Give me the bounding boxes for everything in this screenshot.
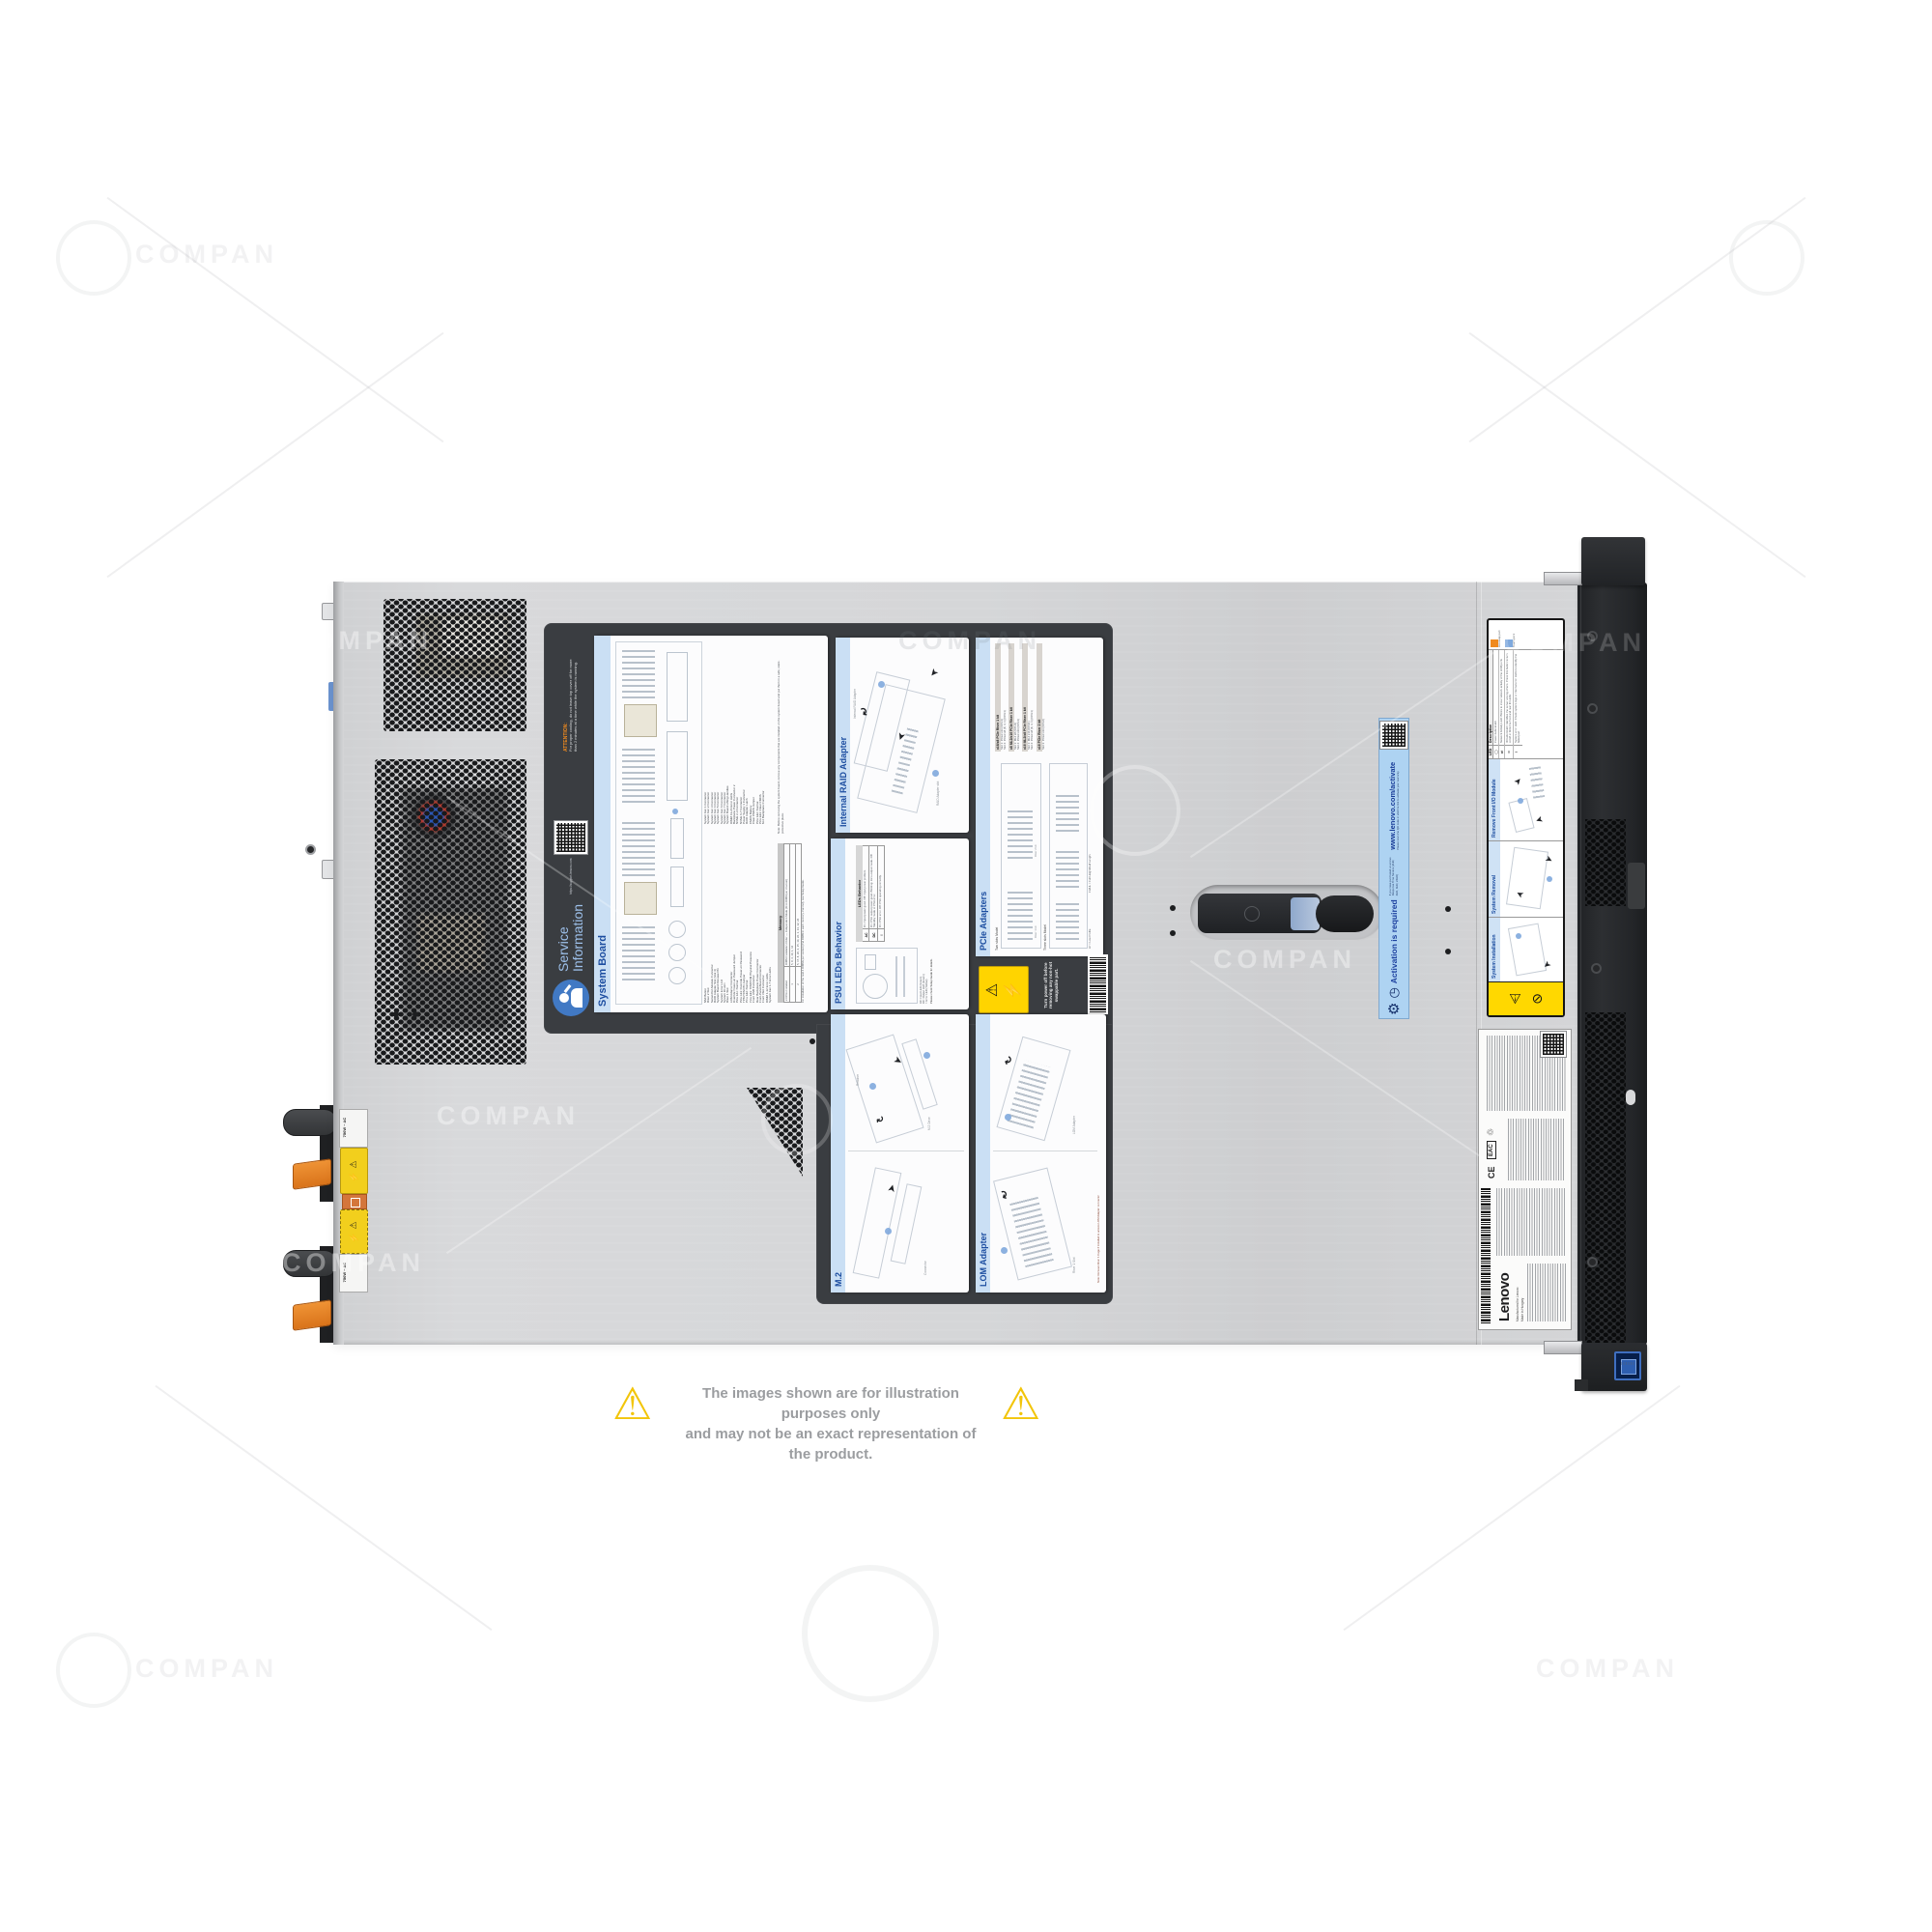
callout-dot	[1547, 876, 1552, 882]
pcie-caption: Three slots Model	[1043, 924, 1047, 951]
lom-line-art	[1009, 1195, 1054, 1267]
attention-body: For proper cooling, do not leave top cov…	[569, 651, 578, 752]
lom-line-art	[993, 1168, 1072, 1281]
callout-dot	[1518, 798, 1523, 804]
pcie-kit: x16 PCIe Riser 2 kit Slot 3: PCIe3 x16 (…	[1037, 643, 1045, 752]
memory-cell: 1	[790, 966, 795, 1002]
m2-caption: Retainer	[856, 1074, 860, 1086]
service-info-panel: Service Information https://support.leno…	[547, 634, 595, 1030]
activation-title: Activation is required	[1389, 899, 1399, 983]
m2-label-title: M.2	[831, 1014, 845, 1293]
plate-warning-sticker: ⚠ ⚡	[979, 966, 1029, 1013]
pcie-line-art: Riser 1 kit Riser 2 kit	[1001, 763, 1041, 949]
high-voltage-icon: ⚡	[1003, 980, 1022, 1000]
disclaimer-text: The images shown are for illustration pu…	[676, 1383, 985, 1464]
gear-icon: ⚙	[1385, 1003, 1403, 1015]
activation-body: Please scan the QR code or visit the lin…	[1397, 753, 1400, 850]
led-row-desc: Power button/LED	[1493, 650, 1498, 745]
microtext-block	[1496, 1188, 1566, 1256]
strip-caution-section: ⚠ ⊘	[1489, 981, 1563, 1015]
rear-screw	[307, 846, 314, 853]
rear-vent-psu-bay	[384, 599, 526, 731]
pcie-kit: x16/x8 PCIe Riser 1 kit Slot 1: PCIe3 x1…	[995, 643, 1007, 752]
hot-swap-label: Hot-swap part	[1498, 622, 1501, 647]
activation-label: ⚙ ◷ Activation is required If you have p…	[1378, 718, 1409, 1019]
pcie-kit-tables: x16/x8 PCIe Riser 1 kit Slot 1: PCIe3 x1…	[995, 643, 1099, 752]
hex-perforation	[375, 759, 526, 1065]
regulatory-barcode	[1481, 1188, 1491, 1323]
board-footer: Memory # CPUs Installed DIMM Installatio…	[778, 645, 824, 1003]
kit-slot: Slot 2: PCIe3 x8 (8, 4, 1) (CPU1)	[1004, 643, 1007, 752]
disclaimer-line-2: and may not be an exact representation o…	[676, 1424, 985, 1464]
arrow-icon: ➤	[1535, 814, 1544, 825]
psu-1-release-tab	[293, 1158, 331, 1190]
regulatory-qr	[1541, 1032, 1566, 1057]
cover-seam	[1476, 582, 1477, 1345]
service-info-title: Information	[571, 904, 585, 972]
pcie-caption: Riser 1 kit	[1034, 926, 1037, 938]
eac-mark: EAC	[1487, 1141, 1496, 1159]
psu-leds-label: PSU LEDs Behavior AC: Input LED (Green) …	[831, 838, 969, 1009]
ce-mark: CE	[1487, 1166, 1496, 1179]
disclaimer-line-1: The images shown are for illustration pu…	[676, 1383, 985, 1424]
internal-raid-label: Internal RAID Adapter ↷ ➤ ➤ RAID Adapter…	[836, 638, 969, 833]
board-diagram	[615, 641, 702, 1005]
connector	[670, 867, 684, 907]
product-photo: COMPAN COMPAN COMPAN	[0, 0, 1932, 1932]
bezel-slot	[1626, 1090, 1635, 1105]
barcode	[1090, 956, 1106, 1012]
cover-hole	[1445, 906, 1451, 912]
psu-led-name: !	[878, 928, 884, 941]
psu-socket	[865, 954, 876, 970]
cover-latch-end-cap	[1316, 895, 1374, 932]
psu-label-title: PSU LEDs Behavior	[831, 838, 845, 1009]
warning-icon: ⚠	[982, 982, 1002, 996]
network-led-icon: ⇄	[1499, 745, 1504, 758]
pcie-label-title: PCIe Adapters	[976, 638, 990, 956]
rack-ear-latch-bottom	[1544, 1341, 1582, 1354]
fan-connector	[668, 967, 686, 984]
cpu-socket	[624, 704, 657, 737]
memory-note: For installation of the next 6 DIMMs per…	[802, 843, 805, 1003]
latch-lock-emblem	[1244, 906, 1260, 922]
pcie-adapters-label: PCIe Adapters Two slots Model Riser 1 ki…	[976, 638, 1103, 956]
psu-led-desc: On: PSU error. Off: PSU operating correc…	[878, 846, 884, 928]
error-led-icon: !	[1514, 745, 1521, 758]
disclaimer: ⚠ The images shown are for illustration …	[0, 1372, 1932, 1449]
warning-icon: ⚠	[1509, 991, 1521, 1008]
warning-triangle-icon: ⚠	[1001, 1381, 1040, 1426]
led-table-header: Description	[1489, 650, 1492, 745]
watermark-text: COMPAN	[1503, 628, 1646, 658]
bezel-ridge	[1580, 582, 1581, 1345]
led-table-header: LED	[1489, 745, 1492, 758]
section-line-art	[1529, 766, 1545, 798]
watermark-logo	[1090, 765, 1180, 856]
psu-1-handle	[283, 1109, 337, 1136]
cover-hole	[393, 1011, 399, 1017]
pcie-footnote: FH/HL = Full Height/Half Length	[1089, 854, 1092, 893]
lom-caption: LOM Adapter	[1072, 1116, 1076, 1134]
watermark-text: COMPAN	[898, 626, 1041, 656]
section-title: Remove Front I/O Module	[1489, 759, 1500, 840]
memory-cell: 5, 8, 3, 10, 1, 12	[790, 844, 795, 966]
section-title: System Removal	[1489, 841, 1500, 917]
microtext-block	[1508, 1119, 1566, 1180]
microtext-block	[1527, 1264, 1566, 1321]
kit-slot: Slot 2: PCIe3 x16 (CPU1)	[1017, 643, 1020, 752]
psu-table-title: LEDs Behavior	[856, 845, 863, 942]
dimm-bank	[622, 820, 655, 876]
lom-line-art	[1008, 1060, 1051, 1128]
cpu-socket	[624, 882, 657, 915]
badge-text-lines	[1621, 1362, 1634, 1365]
riser-slot	[667, 731, 688, 801]
callout-dot	[885, 1228, 892, 1235]
lom-adapter-label: LOM Adapter ↷ Riser 1 Slot ↷ LOM Adapter…	[976, 1014, 1106, 1293]
legend-item: M.2 Backplane Connector	[762, 645, 765, 824]
pcie-kit: x16 ML2/x8 PCIe Riser 1 kit Slot 1: ML2 …	[1022, 643, 1034, 752]
psu-led-name: DC	[869, 928, 877, 941]
cover-hole	[1445, 949, 1451, 954]
pcie-line-art	[1008, 809, 1033, 859]
m2-label: M.2 ➤ ↷ ➤ M.2 Drive Retainer Connector	[831, 1014, 969, 1293]
server-top-view: 750W ~ AC ⚠ ⚡ ⚠ ⚡ 750W ~ AC Service Info…	[0, 0, 1932, 1932]
callout-dot	[1001, 1247, 1008, 1254]
watermark-text: COMPAN	[437, 1101, 580, 1131]
board-legend: NMI Button Riser 2 Slot Serial-Port-Modu…	[704, 645, 774, 1003]
kit-slot: Slot 2: PCIe3 x8 (8, 4, 1) (CPU1)	[1031, 643, 1034, 752]
connector	[670, 818, 684, 859]
callout-dot	[1516, 933, 1521, 939]
warning-icon: ⚠	[349, 1160, 359, 1168]
pcie-line-art	[1056, 849, 1079, 888]
pcie-footnote: LP = Low Profile	[1089, 929, 1092, 949]
memory-col-header: # CPUs Installed	[784, 966, 789, 1002]
led-row-desc: ID button/LED: Identifies the server amo…	[1505, 650, 1513, 745]
support-url: https://support.lenovo.com	[569, 854, 573, 895]
section-line-art	[1508, 923, 1547, 977]
watermark-logo	[761, 1084, 833, 1155]
activation-body: If you have purchased a Lenovo Response …	[1389, 854, 1399, 895]
service-qr-code	[554, 821, 587, 854]
led-row-desc: Network Activity LED: Blinks to show net…	[1499, 650, 1504, 745]
bezel-screw	[1589, 1259, 1596, 1265]
psu-line-art	[903, 956, 905, 997]
id-led-icon: ID	[1505, 745, 1513, 758]
system-board-label: System Board NMI But	[594, 636, 828, 1012]
raid-caption: RAID Adapter slot	[936, 781, 940, 806]
strip-section-installation: System Installation ➤	[1489, 917, 1563, 981]
front-bezel	[1577, 582, 1647, 1345]
callout-dot	[1005, 1114, 1011, 1121]
psu-led-table: LEDs Behavior AC On: Input power good. O…	[856, 845, 885, 942]
psu-legend-line: !: Error LED (Yellow)	[925, 946, 928, 1004]
touch-point-dot	[672, 809, 678, 814]
curved-arrow-icon: ↷	[1000, 1054, 1014, 1066]
pcie-caption: Two slots Model	[995, 927, 999, 951]
strip-section-remove-io: Remove Front I/O Module ➤ ➤	[1489, 758, 1563, 840]
cover-hole	[1170, 905, 1176, 911]
high-voltage-icon: ⚡	[349, 1233, 359, 1243]
m2-caption: M.2 Drive	[927, 1117, 931, 1130]
section-title: System Installation	[1489, 918, 1500, 981]
psu-1-rating-text: 750W ~ AC	[339, 1109, 349, 1146]
raid-caption: Internal RAID Adapter	[853, 689, 857, 719]
dimm-bank	[622, 650, 655, 698]
dimm-bank	[622, 747, 655, 803]
arrow-icon: ➤	[1513, 776, 1523, 786]
warning-icon: ⚠	[349, 1221, 359, 1229]
kit-slot: Slot 3: PCIe3 x16 (CPU2)	[1042, 643, 1045, 752]
callout-dot	[878, 681, 885, 688]
recycle-icon: ♲	[1486, 1128, 1496, 1136]
bezel-perforation	[1585, 1012, 1626, 1343]
rack-ear-latch-top	[1581, 537, 1645, 585]
lenovo-logo: Lenovo	[1496, 1273, 1513, 1321]
mfg-line: Manufactured for Lenovo	[1516, 1288, 1520, 1321]
callout-dot	[923, 1052, 930, 1059]
lom-note: Note: Remove Riser 1 Cage if installed t…	[1097, 1022, 1100, 1283]
psu-line-art	[856, 948, 918, 1004]
pcie-line-art	[1056, 901, 1079, 940]
high-voltage-icon: ⚡	[349, 1172, 359, 1182]
psu-line-art	[895, 956, 897, 997]
m2-caption: Connector	[923, 1261, 927, 1275]
pcie-line-art	[1049, 763, 1088, 949]
psu-fan	[863, 974, 888, 999]
front-io-strip-label: ⚠ ⊘ System Installation ➤ System Removal…	[1487, 618, 1565, 1017]
led-row-desc: System error LED: Check system logs or i…	[1514, 650, 1521, 745]
memory-col-header: DIMM Installation Order — Independent Mo…	[784, 844, 789, 966]
cover-hole	[412, 1011, 418, 1017]
section-line-art	[1506, 847, 1548, 909]
fan-connector	[668, 921, 686, 938]
plate-barcode-label	[1088, 954, 1108, 1014]
psu-led-legend: AC: Input LED (Green) DC: Output LED (Gr…	[920, 946, 933, 1004]
legend-column-right: System Fan 1 Connector System Fan 2 Conn…	[704, 645, 774, 824]
watermark-text: COMPAN	[290, 626, 433, 656]
psu-1-warning-label: ⚠ ⚡	[340, 1148, 368, 1194]
divider	[993, 1151, 1097, 1151]
bezel-latch-bump	[1628, 863, 1645, 909]
callout-dot	[869, 1083, 876, 1090]
lom-label-title: LOM Adapter	[976, 1014, 990, 1293]
raid-label-title: Internal RAID Adapter	[836, 638, 850, 833]
pcie-diagrams: Two slots Model Riser 1 kit Riser 2 kit …	[995, 757, 1099, 951]
legend-item: System Fan 1-7 Error LEDs	[769, 824, 772, 1003]
rear-vent-fan-zone	[375, 759, 526, 1065]
regulatory-label: Lenovo Manufactured for Lenovo Made in H…	[1478, 1029, 1572, 1330]
pcie-caption: Riser 2 kit	[1034, 845, 1037, 857]
cover-hole	[810, 1038, 815, 1044]
pcie-line-art	[1008, 890, 1033, 940]
no-touch-icon: ⊘	[1531, 991, 1543, 1008]
memory-table: Memory # CPUs Installed DIMM Installatio…	[778, 843, 824, 1003]
bezel-perforation	[1585, 819, 1626, 906]
power-led-icon: ◯	[1493, 745, 1498, 758]
label-glyph	[351, 1198, 360, 1207]
warning-triangle-icon: ⚠	[612, 1381, 652, 1426]
service-info-title: Service	[556, 904, 571, 972]
service-person-icon	[553, 980, 589, 1016]
power-off-warning-text: Turn power off before removing any non-h…	[1032, 954, 1070, 1016]
strip-section-removal: System Removal ➤ ➤	[1489, 840, 1563, 917]
callout-dot	[932, 770, 939, 777]
psu-led-desc: On: PSU output power good. Blinking: Zer…	[869, 846, 877, 928]
lom-line-art	[997, 1037, 1071, 1142]
pcie-line-art	[1056, 793, 1079, 832]
pcie-kit: x8 ML2/x16 PCIe Riser 1 kit Slot 1: ML2 …	[1009, 643, 1020, 752]
rack-ear-latch-top	[1544, 572, 1582, 585]
riser-slot	[667, 652, 688, 722]
watermark-text: COMPAN	[282, 1248, 425, 1278]
system-board-title: System Board	[594, 636, 611, 1012]
watermark-text: COMPAN	[1213, 945, 1356, 975]
lom-caption: Riser 1 Slot	[1072, 1258, 1076, 1273]
divider	[848, 1151, 964, 1151]
bezel-screw	[1589, 705, 1596, 712]
arrow-icon: ➤	[927, 667, 940, 679]
psu-led-desc: On: Input power good. Off: Input power p…	[863, 846, 868, 928]
psu-2-release-tab	[293, 1299, 331, 1331]
psu-led-name: AC	[863, 928, 868, 941]
orange-service-label	[342, 1194, 367, 1209]
psu-note: Please check Setup Guide for details.	[930, 946, 933, 1004]
clock-icon: ◷	[1386, 987, 1402, 998]
cover-hole	[1170, 930, 1176, 936]
mfg-line: Made in Hungary	[1520, 1298, 1524, 1321]
board-note: Note: Before removing the system board, …	[778, 660, 824, 834]
bezel-screw	[1593, 965, 1600, 972]
hex-perforation	[384, 599, 526, 731]
